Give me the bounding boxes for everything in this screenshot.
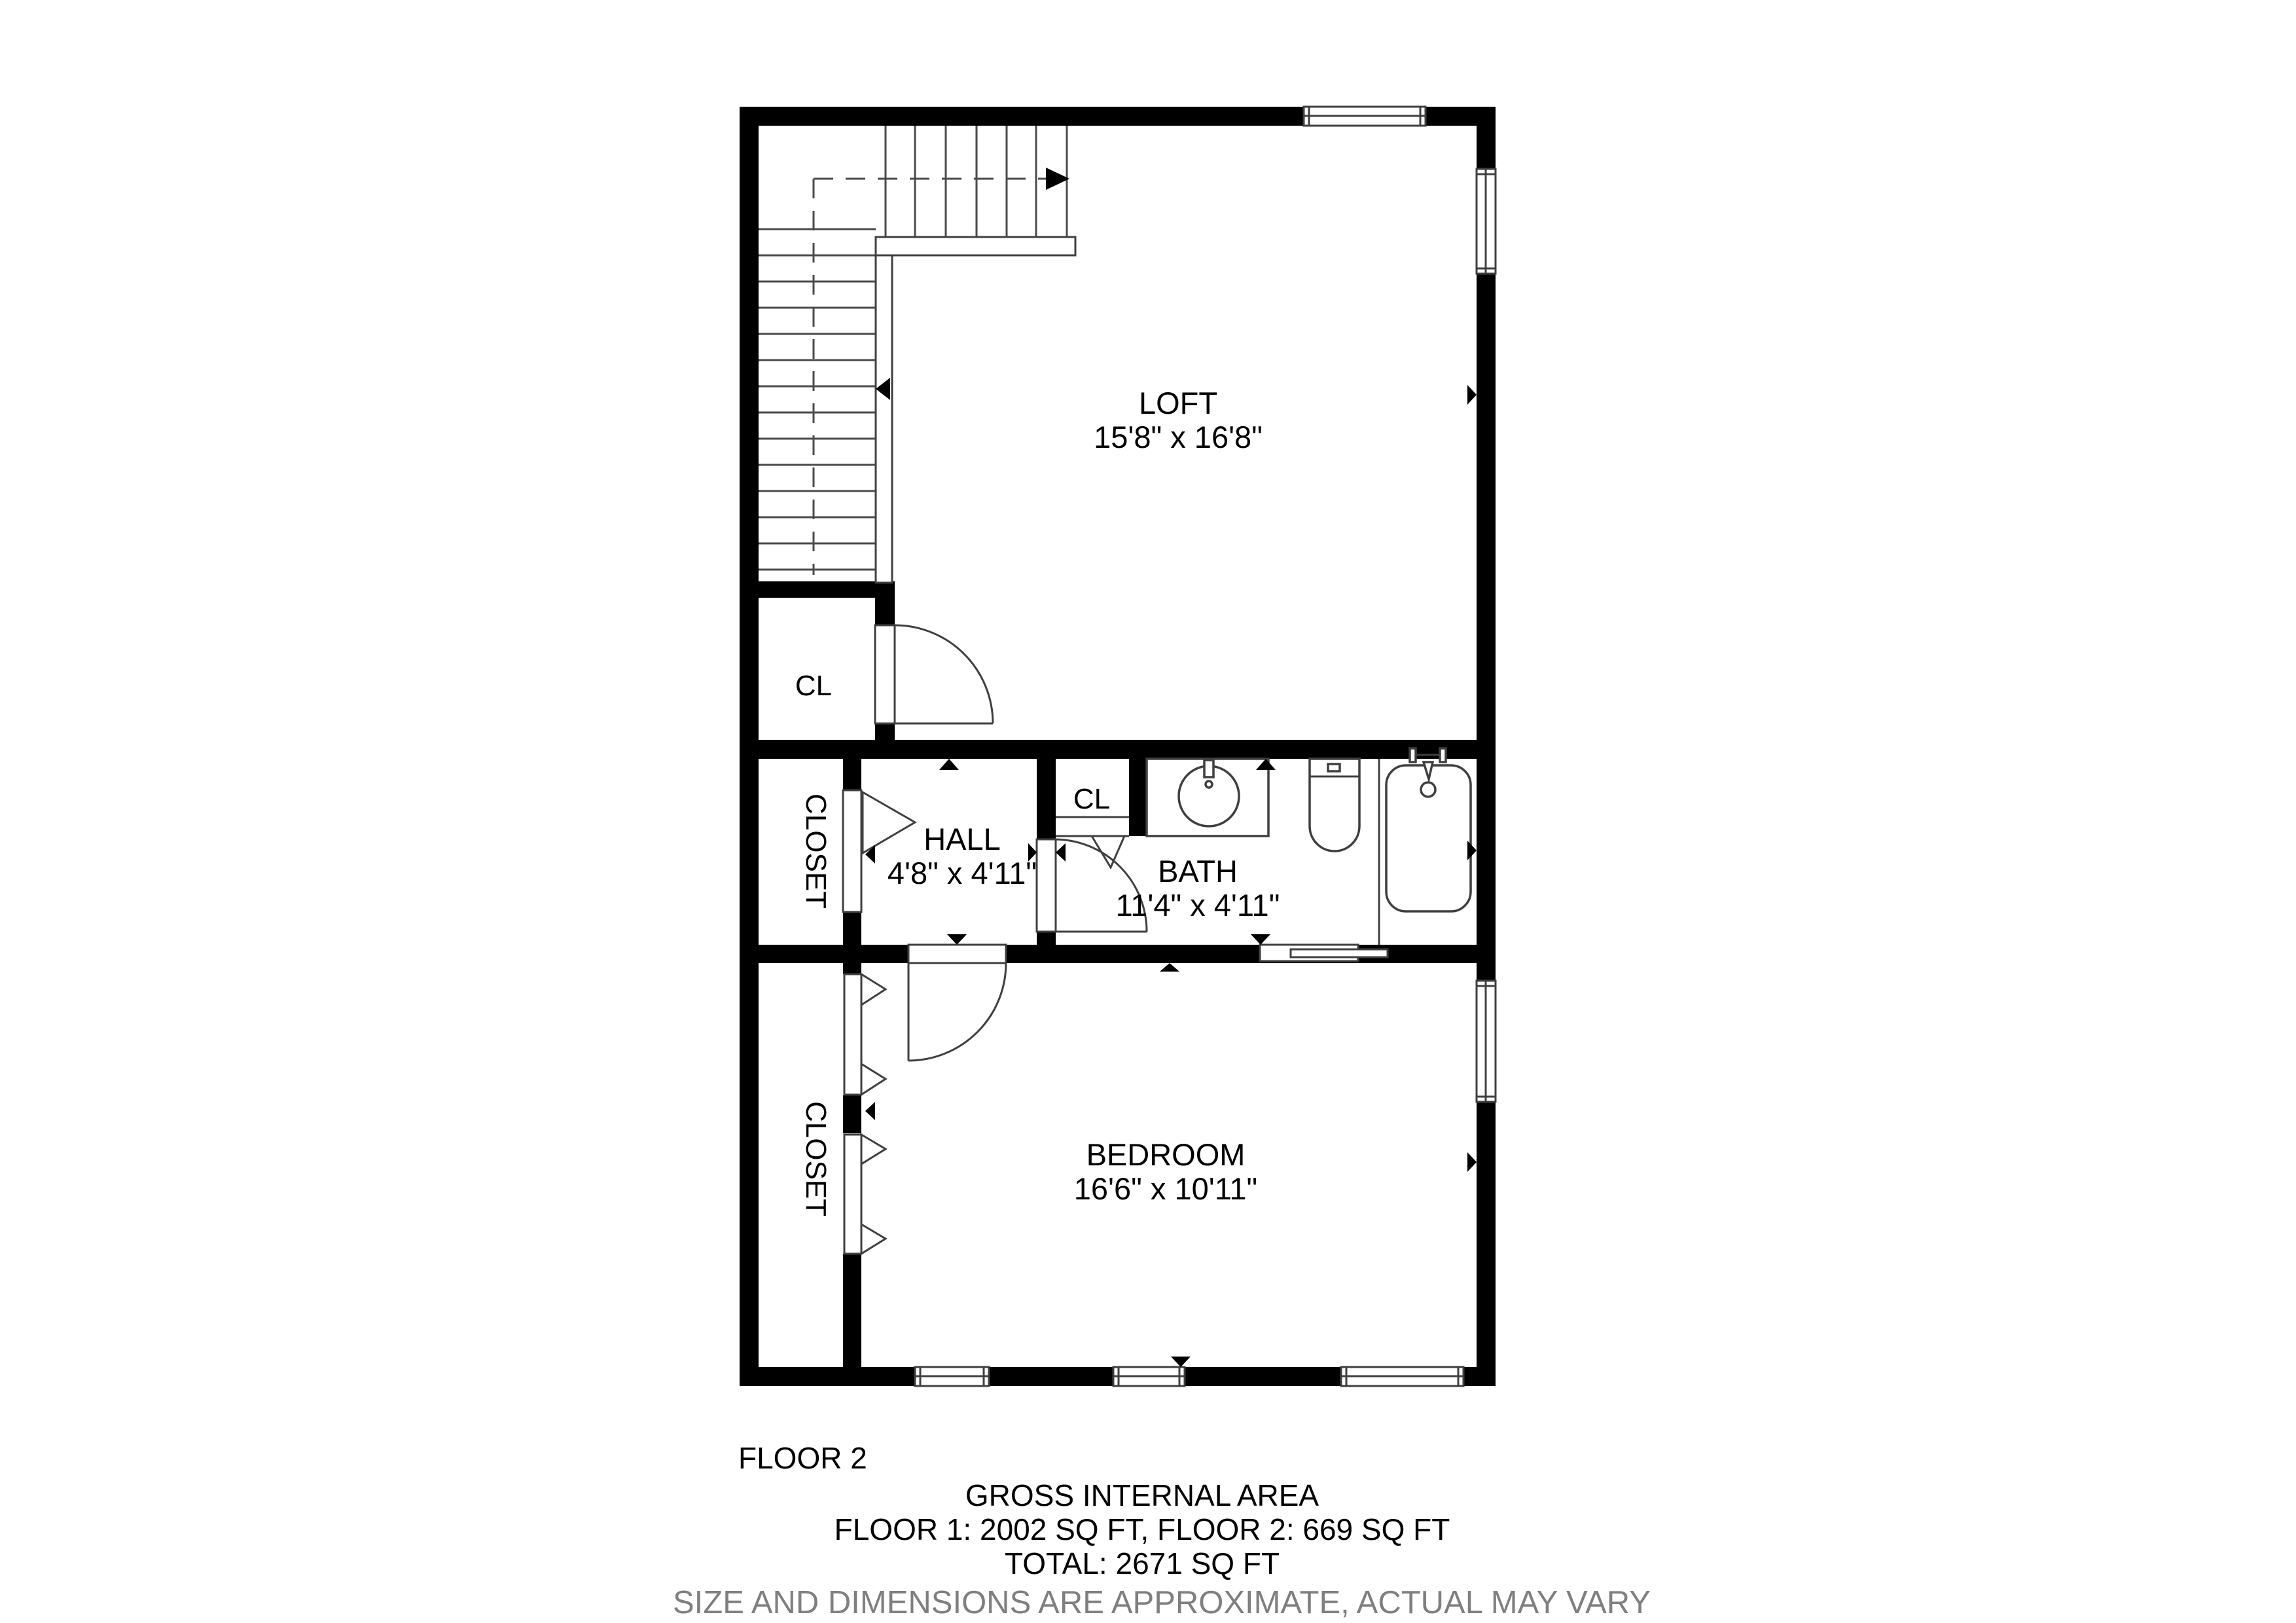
stair-treads-upper [886,126,1067,237]
bedroom-closet-label: CLOSET [800,1101,832,1216]
marker-up-icon [939,759,959,770]
floor-plan-page: LOFT 15'8" x 16'8" CL CLOSET HALL 4'8" x… [0,0,2296,1623]
door-bath-closet-bifold [1056,817,1129,867]
toilet-icon [1310,759,1359,851]
bath-label: BATH [1158,854,1238,888]
window-bottom-left [915,1367,989,1386]
bedroom-dims: 16'6" x 10'11" [1074,1171,1257,1206]
marker-up-icon [1160,963,1179,972]
bathtub-icon [1379,748,1471,945]
hall-dims: 4'8" x 4'11" [888,856,1037,890]
window-right-bedroom [1477,981,1496,1102]
door-hall-closet-bifold [843,790,915,912]
hall-closet-label: CLOSET [800,793,832,909]
marker-right-icon [1467,385,1477,405]
floor-label: FLOOR 2 [738,1441,867,1475]
bath-dims: 11'4" x 4'11" [1116,888,1280,922]
gross-internal-area-title: GROSS INTERNAL AREA [965,1478,1319,1512]
sink-icon [1147,759,1268,836]
stair-rail [876,255,892,583]
staircase [759,126,1075,583]
footer: FLOOR 2 GROSS INTERNAL AREA FLOOR 1: 200… [673,1441,1651,1620]
disclaimer-line: SIZE AND DIMENSIONS ARE APPROXIMATE, ACT… [673,1585,1651,1620]
marker-down-icon [1251,934,1270,945]
marker-left-icon [1056,843,1066,862]
marker-down-icon [1171,1357,1191,1367]
window-bottom-right [1341,1367,1463,1386]
floor-plan-canvas: LOFT 15'8" x 16'8" CL CLOSET HALL 4'8" x… [0,0,2296,1623]
marker-down-icon [947,934,967,945]
stair-treads-lower [759,229,876,570]
window-top [1304,107,1426,126]
marker-right-icon [1467,841,1477,860]
marker-left-icon [865,1102,875,1120]
window-bottom-middle [1113,1367,1185,1386]
door-closet-left [875,625,993,723]
marker-right-icon [1467,1152,1477,1172]
loft-dims: 15'8" x 16'8" [1094,420,1263,454]
closet-left-label: CL [795,670,832,702]
total-area-line: TOTAL: 2671 SQ FT [1005,1546,1280,1580]
bath-closet-label: CL [1073,783,1110,815]
loft-label: LOFT [1139,386,1217,420]
stair-landing-rail [876,237,1075,255]
bedroom-label: BEDROOM [1086,1137,1246,1172]
window-right-loft [1477,169,1496,274]
hall-label: HALL [924,822,1001,856]
door-bedroom [908,945,1006,1061]
floor-areas-line: FLOOR 1: 2002 SQ FT, FLOOR 2: 669 SQ FT [834,1512,1450,1546]
